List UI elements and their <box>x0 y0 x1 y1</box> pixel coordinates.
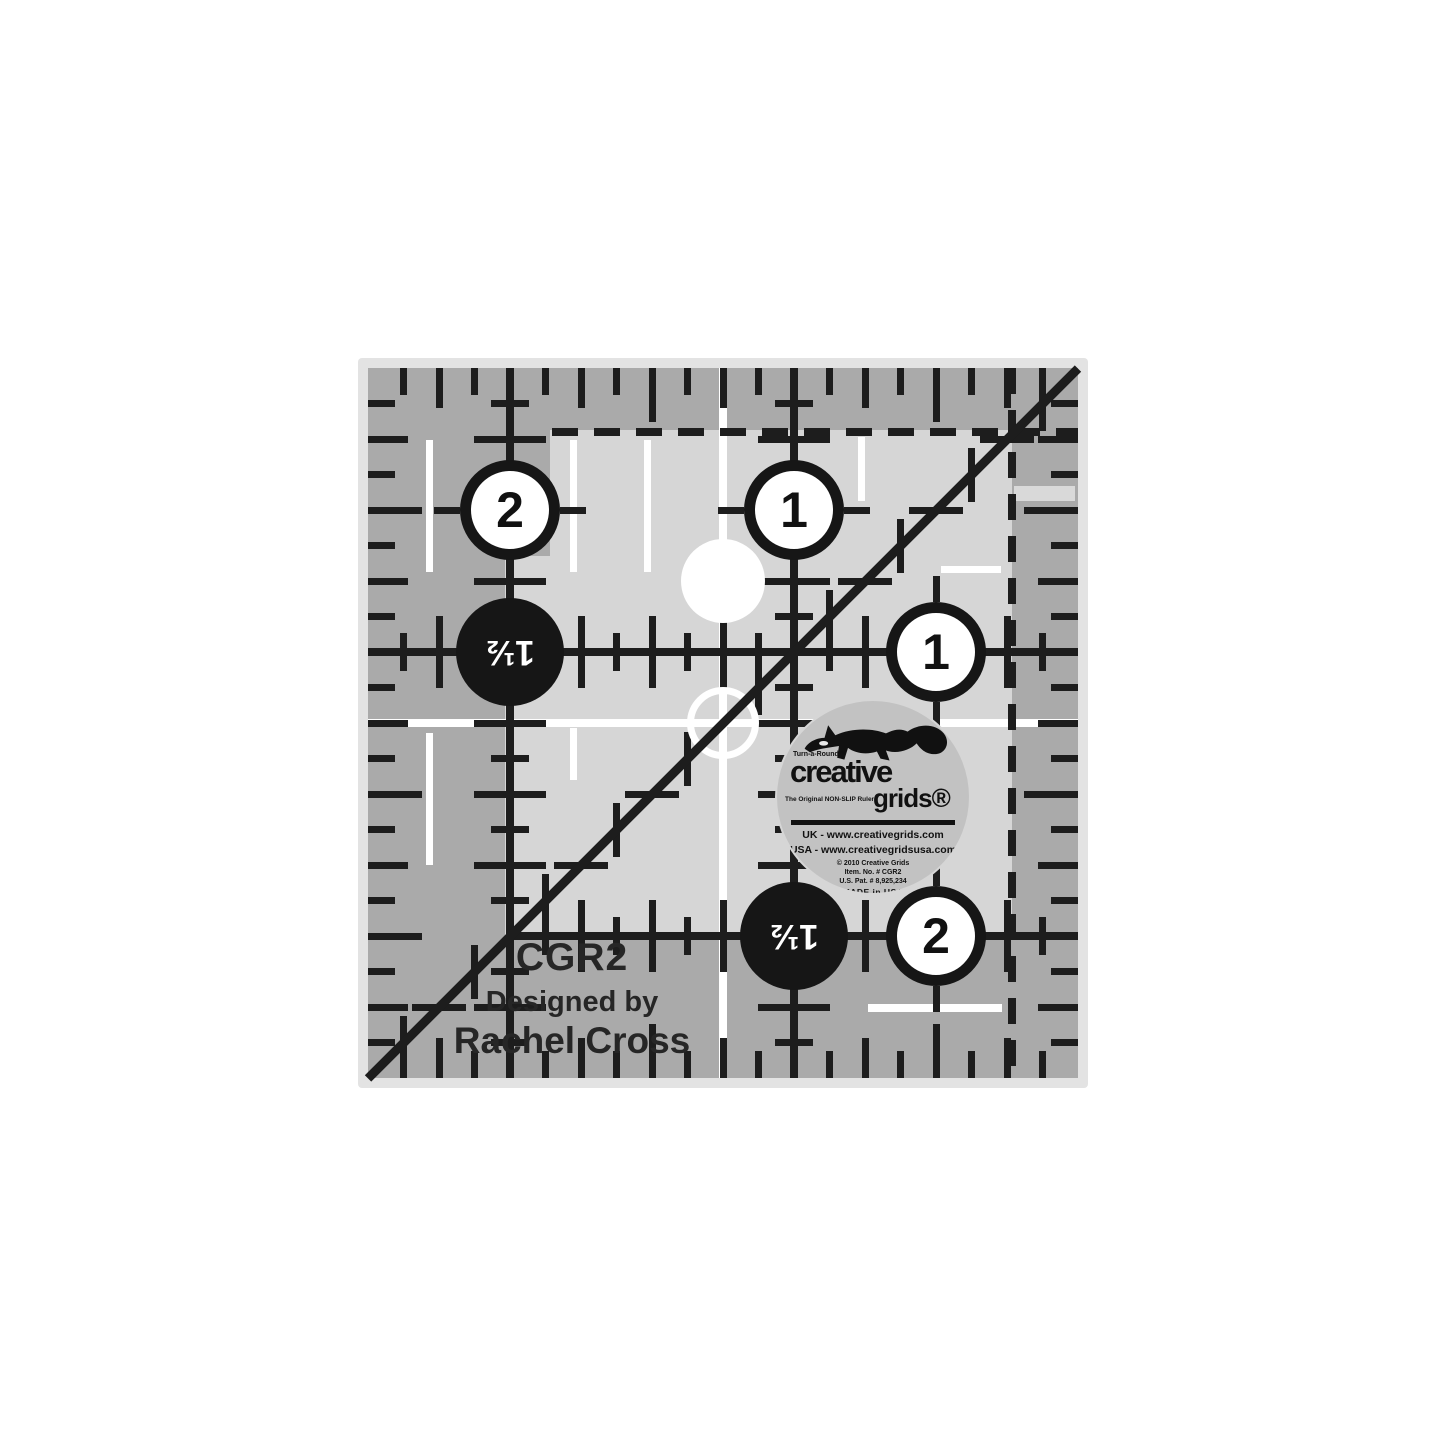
tick-mark <box>1004 368 1011 408</box>
tick-mark <box>775 613 813 620</box>
tick-mark <box>791 1024 798 1078</box>
tick-mark <box>860 649 886 656</box>
tick-mark <box>1051 613 1078 620</box>
tick-mark <box>368 720 408 727</box>
tick-mark <box>474 862 546 869</box>
measure-value: 1 <box>922 623 950 681</box>
tick-mark <box>1039 633 1046 671</box>
tick-mark <box>933 368 940 422</box>
tick-mark <box>1051 755 1078 762</box>
tick-mark <box>720 368 727 408</box>
tick-mark <box>826 368 833 395</box>
tick-mark <box>471 368 478 395</box>
tick-mark <box>862 368 869 408</box>
tick-mark <box>542 368 549 395</box>
tick-mark <box>791 560 798 586</box>
tick-mark <box>368 507 422 514</box>
sticker-patent: U.S. Pat. # 8,925,234 <box>777 878 969 885</box>
tick-mark <box>933 1024 940 1078</box>
tick-mark <box>649 616 656 688</box>
tick-mark <box>933 576 940 602</box>
tick-mark <box>560 507 586 514</box>
tick-mark <box>1051 471 1078 478</box>
tick-mark <box>613 368 620 395</box>
brand-name-line2: grids® <box>873 783 950 814</box>
hanging-hole <box>681 539 765 623</box>
measure-circle-1: 1 <box>744 460 844 560</box>
measure-value: 1½ <box>486 632 535 672</box>
measure-circle-1: 1 <box>886 602 986 702</box>
tick-mark <box>368 471 395 478</box>
tick-mark <box>1039 1051 1046 1078</box>
tick-mark <box>791 434 798 460</box>
tick-mark <box>649 368 656 422</box>
tick-mark <box>755 1051 762 1078</box>
tick-mark <box>1051 400 1078 407</box>
tick-mark <box>578 616 585 688</box>
sticker-uk-website: UK - www.creativegrids.com <box>777 829 969 841</box>
turnaround-circle-1-half: 1½ <box>456 598 564 706</box>
tick-mark <box>775 1039 813 1046</box>
tick-mark <box>986 933 1012 940</box>
tick-mark <box>897 368 904 395</box>
tick-mark <box>368 542 395 549</box>
tick-mark <box>368 578 408 585</box>
tick-mark <box>986 649 1012 656</box>
tick-mark <box>400 368 407 395</box>
tick-mark <box>474 720 546 727</box>
tick-mark <box>368 436 408 443</box>
measure-value: 1½ <box>770 916 819 956</box>
tick-mark <box>775 684 813 691</box>
tick-mark <box>368 1039 395 1046</box>
tick-mark <box>578 368 585 408</box>
designer-name: Rachel Cross <box>452 1020 692 1062</box>
tick-mark <box>368 826 395 833</box>
tick-mark <box>1051 968 1078 975</box>
tick-mark <box>1038 720 1078 727</box>
tick-mark <box>860 933 886 940</box>
tick-mark <box>1051 542 1078 549</box>
tick-mark <box>613 633 620 671</box>
tick-mark <box>434 507 460 514</box>
tick-mark <box>718 507 744 514</box>
tick-mark <box>1038 578 1078 585</box>
tick-mark <box>720 1038 727 1078</box>
tick-mark <box>1024 649 1078 656</box>
tick-mark <box>1051 1039 1078 1046</box>
tick-mark <box>368 968 395 975</box>
tick-mark <box>1039 917 1046 955</box>
sticker-usa-website: USA - www.creativegridsusa.com <box>777 844 969 856</box>
tick-mark <box>507 560 514 586</box>
tick-mark <box>368 684 395 691</box>
tick-mark <box>436 616 443 688</box>
designed-by-label: Designed by <box>452 986 692 1019</box>
tick-mark <box>720 900 727 972</box>
tick-mark <box>968 368 975 395</box>
sticker-sub-tagline: The Original NON-SLIP Ruler <box>785 796 874 803</box>
brand-sticker: Turn-a-Round™ creative The Original NON-… <box>775 699 971 895</box>
tick-mark <box>720 616 727 688</box>
tick-mark <box>368 613 395 620</box>
tick-mark <box>1038 1004 1078 1011</box>
tick-mark <box>368 649 422 656</box>
tick-mark <box>684 368 691 395</box>
tick-mark <box>897 1051 904 1078</box>
turnaround-circle-1-half: 1½ <box>740 882 848 990</box>
tick-mark <box>368 791 422 798</box>
tick-mark <box>1051 684 1078 691</box>
tick-mark <box>933 986 940 1012</box>
product-photo-stage: 2 1 1½ 1 1½ 2 CGR2 Designed by Rachel Cr… <box>0 0 1445 1445</box>
tick-mark <box>368 862 408 869</box>
tick-mark <box>1051 826 1078 833</box>
tick-mark <box>826 1051 833 1078</box>
measure-value: 1 <box>780 481 808 539</box>
model-number: CGR2 <box>452 936 692 980</box>
tick-mark <box>1024 933 1078 940</box>
tick-mark <box>1004 1038 1011 1078</box>
tick-mark <box>474 791 546 798</box>
tick-mark <box>368 897 395 904</box>
tick-mark <box>507 368 514 422</box>
tick-mark <box>1038 436 1078 443</box>
sticker-item-number: Item. No. # CGR2 <box>777 869 969 876</box>
tick-mark <box>491 826 529 833</box>
measure-value: 2 <box>922 907 950 965</box>
tick-mark <box>791 368 798 422</box>
tick-mark <box>844 507 870 514</box>
tick-mark <box>436 1038 443 1078</box>
tick-mark <box>775 400 813 407</box>
tick-mark <box>491 400 529 407</box>
measure-circle-2: 2 <box>886 886 986 986</box>
tick-mark <box>368 400 395 407</box>
tick-mark <box>1038 862 1078 869</box>
tick-mark <box>1024 791 1078 798</box>
tick-mark <box>400 633 407 671</box>
tick-mark <box>491 897 529 904</box>
tick-mark <box>862 1038 869 1078</box>
measure-circle-2: 2 <box>460 460 560 560</box>
tick-mark <box>1051 897 1078 904</box>
tick-mark <box>755 368 762 395</box>
sticker-divider <box>791 820 955 825</box>
tick-mark <box>436 368 443 408</box>
tick-mark <box>758 1004 830 1011</box>
sticker-copyright: © 2010 Creative Grids <box>777 860 969 867</box>
measure-value: 2 <box>496 481 524 539</box>
tick-mark <box>507 434 514 460</box>
tick-mark <box>368 755 395 762</box>
tick-mark <box>368 1004 408 1011</box>
tick-mark <box>368 933 422 940</box>
tick-mark <box>968 1051 975 1078</box>
tick-mark <box>1024 507 1078 514</box>
tick-mark <box>684 633 691 671</box>
tick-mark <box>491 755 529 762</box>
